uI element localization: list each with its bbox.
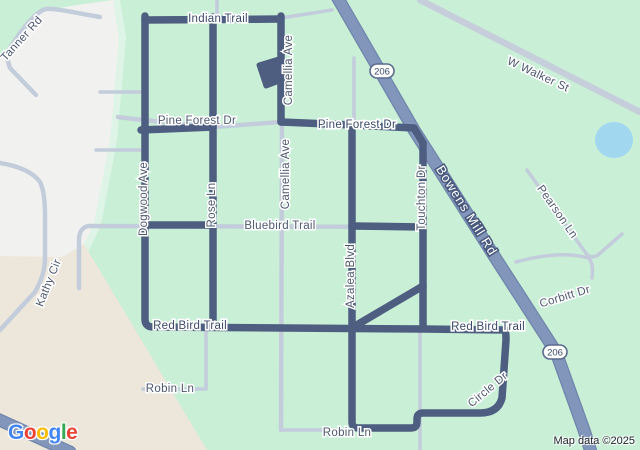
street-label-pine-forest-dr: Pine Forest Dr xyxy=(318,119,396,131)
street-label-red-bird-trail: Red Bird Trail xyxy=(451,321,525,333)
highway-shield-206: 206 xyxy=(543,345,567,359)
map-canvas[interactable]: Tanner RdIndian TrailCamellia AvePine Fo… xyxy=(0,0,640,450)
street-label-azalea-blvd: Azalea Blvd xyxy=(345,244,357,308)
street-label-rose-ln: Rose Ln xyxy=(206,183,218,228)
google-logo-letter: o xyxy=(24,421,36,444)
google-logo-letter: e xyxy=(66,421,77,444)
map-image: Tanner RdIndian TrailCamellia AvePine Fo… xyxy=(0,0,640,450)
svg-text:206: 206 xyxy=(547,348,563,359)
map-attribution: Map data ©2025 xyxy=(554,435,636,447)
pond xyxy=(595,122,633,158)
street-label-camellia-ave: Camellia Ave xyxy=(283,35,295,106)
svg-text:206: 206 xyxy=(374,67,390,78)
route-pine-forest-west xyxy=(141,127,213,130)
street-label-red-bird-trail: Red Bird Trail xyxy=(153,320,227,332)
street-label-robin-ln: Robin Ln xyxy=(146,383,194,395)
street-label-robin-ln: Robin Ln xyxy=(323,427,371,439)
google-logo-letter: G xyxy=(8,421,24,444)
street-label-touchton-dr: Touchton Dr xyxy=(416,165,428,230)
street-label-pine-forest-dr: Pine Forest Dr xyxy=(158,115,236,127)
street-label-indian-trail: Indian Trail xyxy=(188,13,248,25)
route-bluebird-east xyxy=(352,226,423,227)
route-camellia-loop xyxy=(259,58,282,86)
highway-shield-206: 206 xyxy=(370,64,394,78)
google-logo-letter: g xyxy=(49,421,61,444)
street-label-bluebird-trail: Bluebird Trail xyxy=(244,220,315,232)
street-label-camellia-ave: Camellia Ave xyxy=(280,139,292,210)
google-logo[interactable]: Google xyxy=(8,421,77,445)
google-logo-letter: o xyxy=(36,421,48,444)
street-label-dogwood-ave: Dogwood Ave xyxy=(138,162,150,236)
